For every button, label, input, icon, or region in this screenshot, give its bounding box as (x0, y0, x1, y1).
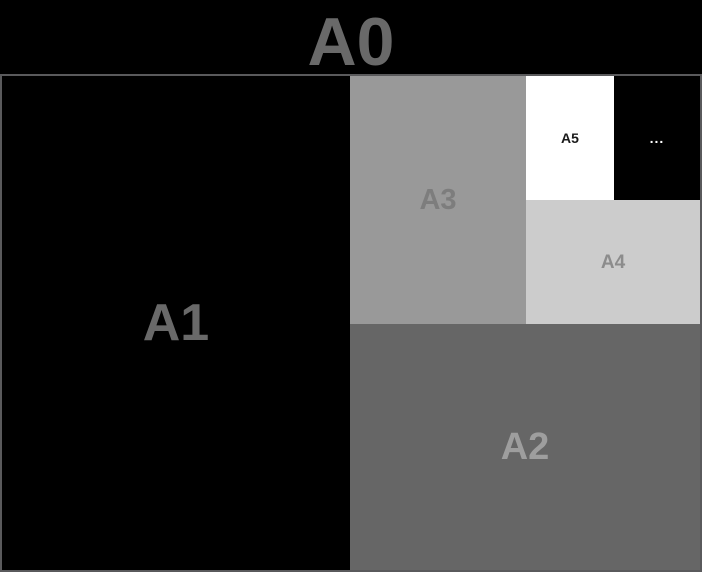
region-smaller-sizes: ... (614, 76, 700, 200)
region-a5-label: A5 (561, 131, 579, 145)
region-smaller-sizes-label: ... (650, 131, 665, 145)
a0-sheet-outline: A1 A3 A5 ... A4 A2 (0, 74, 702, 572)
region-a4-label: A4 (601, 253, 625, 272)
paper-sizes-diagram: A0 A1 A3 A5 ... A4 A2 (0, 0, 702, 572)
region-a3: A3 (350, 76, 526, 324)
region-a5: A5 (526, 76, 614, 200)
region-a4: A4 (526, 200, 700, 324)
title-band: A0 (0, 0, 702, 74)
region-a3-label: A3 (419, 186, 456, 215)
region-a2: A2 (350, 324, 700, 570)
region-a1: A1 (2, 76, 350, 570)
region-a2-label: A2 (501, 428, 550, 466)
page-title: A0 (308, 8, 395, 76)
region-a1-label: A1 (143, 297, 209, 349)
